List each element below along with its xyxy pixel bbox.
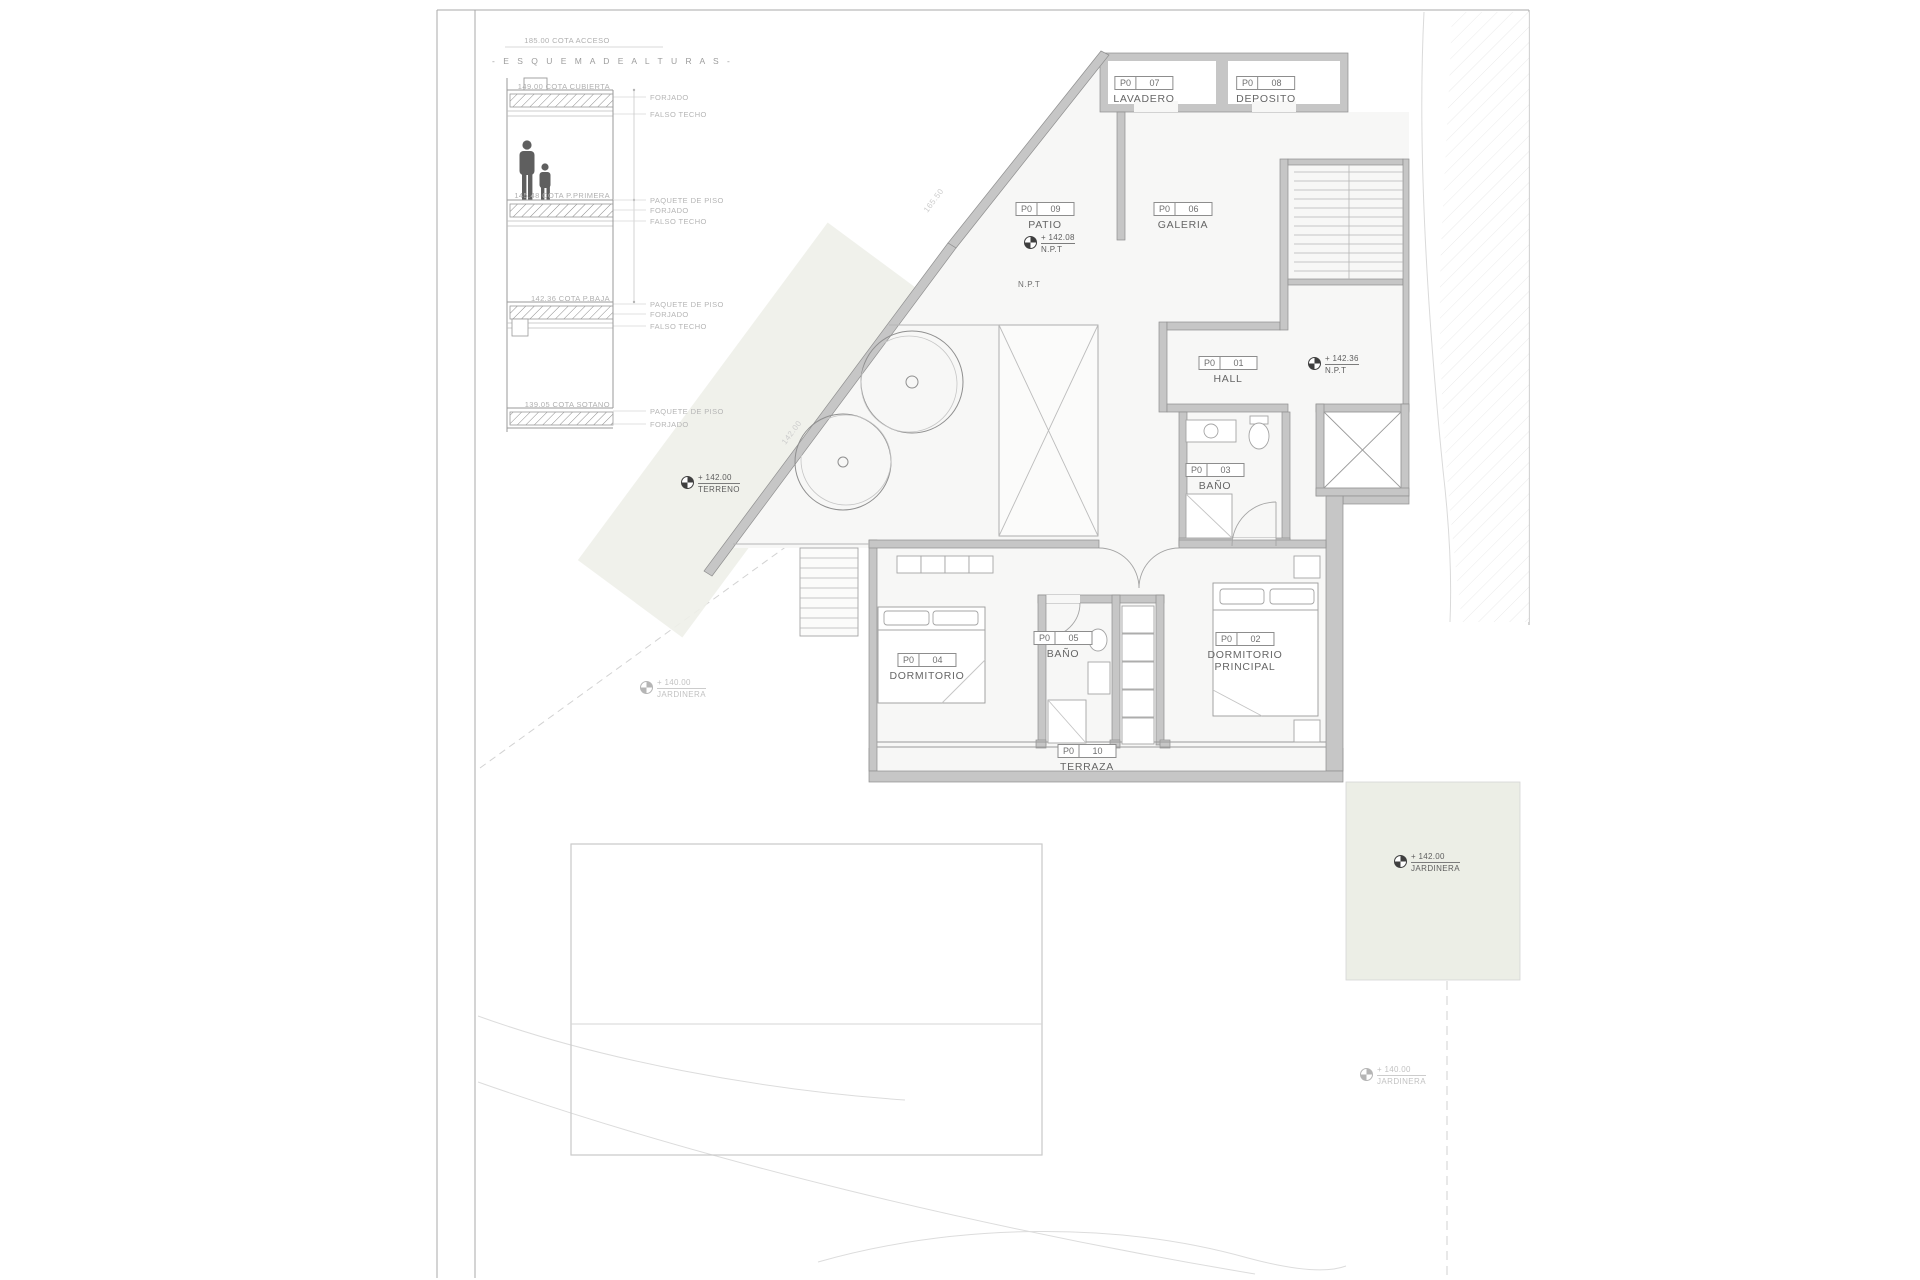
cota-baja: 142.36 COTA P.BAJA bbox=[460, 294, 610, 303]
schema-title: - E S Q U E M A D E A L T U R A S - bbox=[492, 56, 682, 66]
jardinera-planter bbox=[1346, 782, 1520, 980]
room-tag-patio: P009 PATIO bbox=[1016, 199, 1075, 231]
marker-patio-npt: + 142.08N.P.T bbox=[1024, 233, 1075, 254]
room-number: 10 bbox=[1080, 745, 1116, 757]
room-name: TERRAZA bbox=[1058, 761, 1117, 773]
cota-acceso-note: 185.00 COTA ACCESO bbox=[507, 36, 627, 45]
room-tag-galeria: P006 GALERIA bbox=[1154, 199, 1213, 231]
room-name: GALERIA bbox=[1154, 219, 1213, 231]
label-paquete-3: PAQUETE DE PISO bbox=[650, 300, 724, 309]
room-name: PATIO bbox=[1016, 219, 1075, 231]
label-forjado-4: FORJADO bbox=[650, 420, 689, 429]
room-number: 03 bbox=[1208, 464, 1244, 476]
pool-outline bbox=[571, 844, 1042, 1155]
room-name-line2: PRINCIPAL bbox=[1207, 661, 1282, 673]
room-name: LAVADERO bbox=[1113, 93, 1174, 105]
room-tag-dormitorio-principal: P002 DORMITORIO PRINCIPAL bbox=[1207, 629, 1282, 673]
label-paquete-2: PAQUETE DE PISO bbox=[650, 196, 724, 205]
room-level: P0 bbox=[1155, 203, 1176, 215]
room-level: P0 bbox=[1217, 633, 1238, 645]
label-paquete-4: PAQUETE DE PISO bbox=[650, 407, 724, 416]
cota-primera: 145.48 COTA P.PRIMERA bbox=[460, 191, 610, 200]
label-forjado-1: FORJADO bbox=[650, 93, 689, 102]
architectural-sheet: 185.00 COTA ACCESO - E S Q U E M A D E A… bbox=[0, 0, 1920, 1280]
room-number: 07 bbox=[1136, 77, 1172, 89]
room-tag-dormitorio-04: P004 DORMITORIO bbox=[889, 650, 964, 682]
label-forjado-3: FORJADO bbox=[650, 310, 689, 319]
room-tag-bano-05: P005 BAÑO bbox=[1034, 628, 1093, 660]
height-schema-linework bbox=[505, 47, 663, 432]
room-number: 08 bbox=[1258, 77, 1294, 89]
benchmark-icon bbox=[640, 681, 653, 694]
label-falsotecho-3: FALSO TECHO bbox=[650, 322, 707, 331]
marker-jardinera-right: + 142.00JARDINERA bbox=[1394, 852, 1460, 873]
room-level: P0 bbox=[1187, 464, 1208, 476]
room-number: 06 bbox=[1176, 203, 1212, 215]
room-level: P0 bbox=[1059, 745, 1080, 757]
room-level: P0 bbox=[899, 654, 920, 666]
room-number: 01 bbox=[1221, 357, 1257, 369]
cota-sotano: 139.05 COTA SOTANO bbox=[460, 400, 610, 409]
room-number: 05 bbox=[1056, 632, 1092, 644]
room-level: P0 bbox=[1200, 357, 1221, 369]
benchmark-icon bbox=[1024, 236, 1037, 249]
marker-hall-npt: + 142.36N.P.T bbox=[1308, 354, 1359, 375]
room-level: P0 bbox=[1035, 632, 1056, 644]
room-number: 09 bbox=[1038, 203, 1074, 215]
room-level: P0 bbox=[1115, 77, 1136, 89]
label-falsotecho-2: FALSO TECHO bbox=[650, 217, 707, 226]
room-number: 04 bbox=[920, 654, 956, 666]
room-number: 02 bbox=[1238, 633, 1274, 645]
npt-note: N.P.T bbox=[1018, 280, 1040, 289]
terrain-hatch bbox=[1440, 12, 1529, 622]
marker-jardinera-left-faint: + 140.00JARDINERA bbox=[640, 678, 706, 699]
room-name: DEPOSITO bbox=[1236, 93, 1296, 105]
benchmark-icon bbox=[1308, 357, 1321, 370]
room-name: BAÑO bbox=[1186, 480, 1245, 492]
room-name: DORMITORIO bbox=[1207, 649, 1282, 661]
room-level: P0 bbox=[1017, 203, 1038, 215]
benchmark-icon bbox=[1394, 855, 1407, 868]
room-tag-hall: P001 HALL bbox=[1199, 353, 1258, 385]
marker-jardinera-bottom-faint: + 140.00JARDINERA bbox=[1360, 1065, 1426, 1086]
label-falsotecho-1: FALSO TECHO bbox=[650, 110, 707, 119]
room-tag-terraza: P010 TERRAZA bbox=[1058, 741, 1117, 773]
benchmark-icon bbox=[681, 476, 694, 489]
benchmark-icon bbox=[1360, 1068, 1373, 1081]
room-name: BAÑO bbox=[1034, 648, 1093, 660]
room-name: HALL bbox=[1199, 373, 1258, 385]
room-name: DORMITORIO bbox=[889, 670, 964, 682]
room-tag-deposito: P008 DEPOSITO bbox=[1236, 73, 1296, 105]
room-level: P0 bbox=[1237, 77, 1258, 89]
label-forjado-2: FORJADO bbox=[650, 206, 689, 215]
marker-terreno: + 142.00TERRENO bbox=[681, 473, 740, 494]
room-tag-bano-03: P003 BAÑO bbox=[1186, 460, 1245, 492]
floorplan-linework bbox=[0, 0, 1920, 1280]
room-tag-lavadero: P007 LAVADERO bbox=[1113, 73, 1174, 105]
cota-cubierta: 149.00 COTA CUBIERTA bbox=[460, 82, 610, 91]
